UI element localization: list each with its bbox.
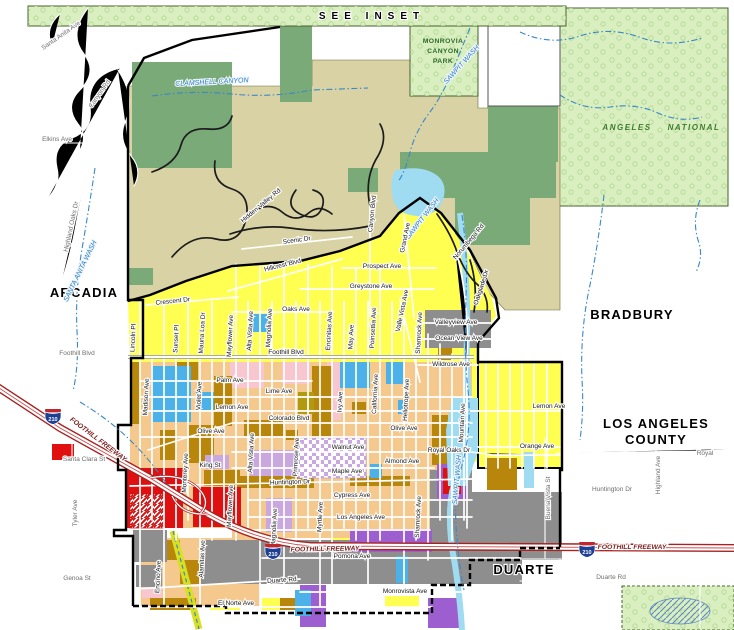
label-maple-ave: Maple Ave — [332, 468, 363, 475]
label-county: COUNTY — [625, 432, 687, 447]
label-park: PARK — [433, 58, 453, 65]
label-lemon-ave: Lemon Ave — [216, 404, 249, 411]
label-arcadia: ARCADIA — [50, 285, 118, 300]
svg-text:210: 210 — [582, 550, 591, 556]
label-los-angeles: LOS ANGELES — [603, 416, 709, 431]
label-oaks-ave: Oaks Ave — [282, 306, 310, 313]
label-genoa-st: Genoa St — [63, 575, 91, 582]
map-canvas: SEE INSETMONROVIACANYONPARKANGELESNATION… — [0, 0, 734, 630]
monrovia-zoning-map: SEE INSETMONROVIACANYONPARKANGELESNATION… — [0, 0, 734, 630]
label-canyon: CANYON — [427, 48, 459, 55]
label-huntington-dr: Huntington Dr — [270, 478, 311, 486]
spreading-basin — [622, 586, 734, 630]
label-santa-clara-st: Santa Clara St — [63, 456, 105, 463]
label-prospect-ave: Prospect Ave — [363, 263, 402, 270]
label-royal-oaks-dr: Royal Oaks Dr — [428, 447, 471, 454]
label-almond-ave: Almond Ave — [385, 458, 420, 465]
label-ivy-ave: Ivy Ave — [336, 391, 344, 413]
label-elkins-ave: Elkins Ave — [42, 136, 72, 143]
label-duarte-rd: Duarte Rd — [596, 574, 626, 581]
label-king-st: King St — [200, 462, 221, 469]
label-buena-vista-st: Buena Vista St — [545, 476, 552, 519]
label-tyler-ave: Tyler Ave — [72, 499, 79, 526]
svg-text:210: 210 — [268, 552, 277, 558]
label-lemon-ave: Lemon Ave — [533, 403, 566, 410]
inset-viewport — [488, 24, 560, 106]
label-monrovista-ave: Monrovista Ave — [383, 588, 428, 595]
label-el-norte-ave: El Norte Ave — [218, 600, 254, 607]
label-see-inset: SEE INSET — [319, 11, 425, 22]
label-foothill-freeway: FOOTHILL FREEWAY — [598, 544, 668, 551]
interstate-shield-210: 210 — [579, 542, 595, 558]
label-angeles: ANGELES — [601, 123, 651, 132]
label-national: NATIONAL — [668, 123, 721, 132]
label-pomona-ave: Pomona Ave — [334, 553, 371, 560]
label-wildrose-ave: Wildrose Ave — [432, 361, 470, 368]
label-royal: Royal — [697, 450, 714, 457]
label-foothill-freeway: FOOTHILL FREEWAY — [290, 545, 360, 553]
label-lime-ave: Lime Ave — [266, 388, 293, 395]
label-olive-ave: Olive Ave — [197, 428, 225, 435]
label-may-ave: May Ave — [347, 324, 355, 350]
svg-text:210: 210 — [48, 417, 57, 423]
label-cypress-ave: Cypress Ave — [334, 492, 371, 499]
label-duarte: DUARTE — [493, 562, 554, 577]
interstate-shield-210: 210 — [265, 544, 281, 560]
label-orange-ave: Orange Ave — [520, 443, 555, 450]
label-palm-ave: Palm Ave — [216, 377, 244, 384]
interstate-shield-210: 210 — [45, 409, 61, 425]
label-monrovia: MONROVIA — [423, 38, 464, 45]
label-bradbury: BRADBURY — [590, 307, 674, 322]
label-huntington-dr: Huntington Dr — [592, 486, 633, 493]
label-foothill-blvd: Foothill Blvd — [268, 349, 304, 356]
label-ocean-view-ave: Ocean View Ave — [435, 335, 483, 342]
label-sunset-pl: Sunset Pl — [172, 324, 180, 353]
label-los-angeles-ave: Los Angeles Ave — [337, 514, 385, 521]
label-walnut-ave: Walnut Ave — [332, 444, 365, 451]
label-highland-ave: Highland Ave — [655, 456, 662, 495]
see-inset-strip — [28, 6, 566, 26]
label-valleyview-ave: Valleyview Ave — [435, 319, 478, 326]
label-colorado-blvd: Colorado Blvd — [269, 415, 310, 422]
label-greystone-ave: Greystone Ave — [350, 283, 393, 290]
label-olive-ave: Olive Ave — [390, 425, 418, 432]
label-foothill-blvd: Foothill Blvd — [59, 350, 95, 357]
